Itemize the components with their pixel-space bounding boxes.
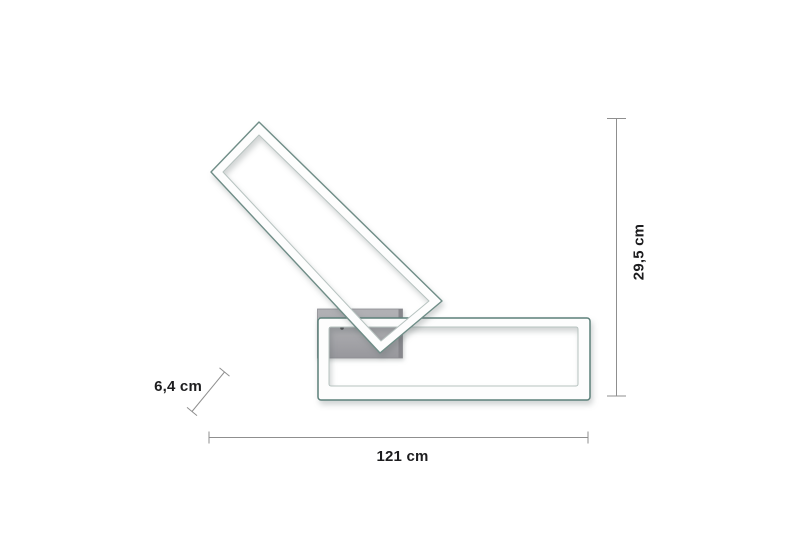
depth-dimension-upper-tick (220, 368, 230, 376)
height-dimension-line (607, 119, 626, 397)
height-dimension-label: 29,5 cm (632, 224, 647, 280)
product-dimension-diagram: 121 cm 29,5 cm 6,4 cm (0, 0, 800, 533)
width-dimension-line (209, 432, 588, 444)
depth-dimension-label: 6,4 cm (138, 379, 202, 394)
width-dimension-label: 121 cm (342, 449, 463, 464)
depth-dimension-lower-tick (187, 407, 197, 415)
